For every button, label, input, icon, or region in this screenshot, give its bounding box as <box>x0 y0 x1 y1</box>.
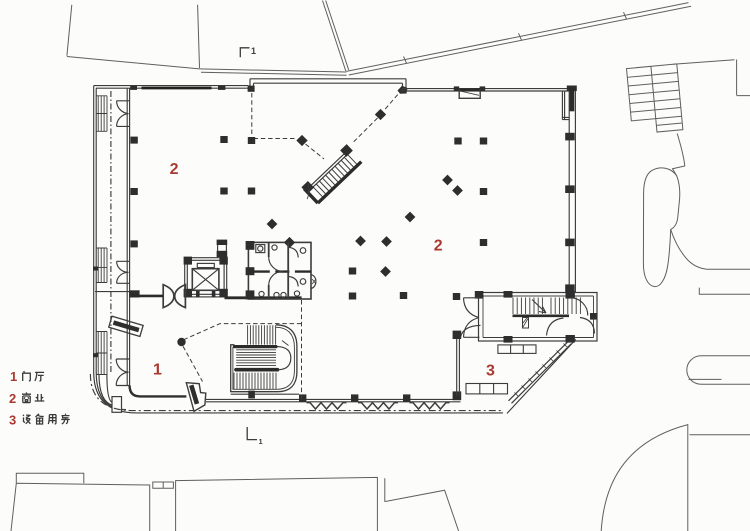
svg-text:1: 1 <box>259 437 263 446</box>
svg-text:3: 3 <box>9 412 16 427</box>
svg-text:1: 1 <box>153 361 162 378</box>
svg-text:2: 2 <box>9 391 16 406</box>
svg-text:3: 3 <box>486 363 495 380</box>
svg-text:1: 1 <box>251 46 256 56</box>
svg-text:2: 2 <box>434 237 443 254</box>
svg-text:1: 1 <box>10 369 17 384</box>
svg-text:2: 2 <box>170 161 179 178</box>
